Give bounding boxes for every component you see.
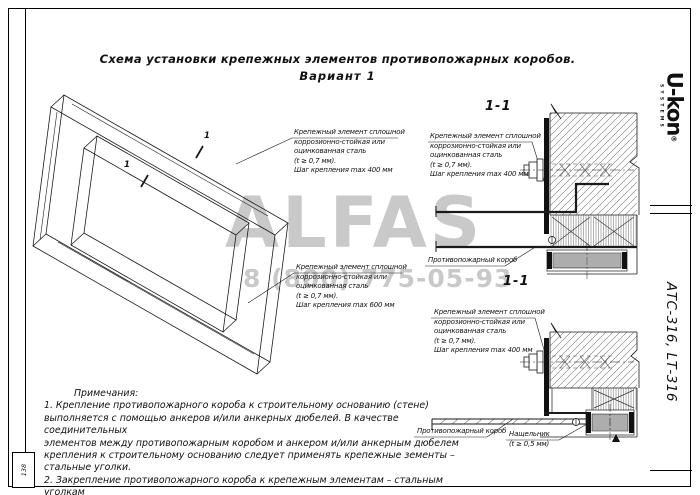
note-line: 1. Крепление противопожарного короба к с… <box>44 400 464 412</box>
annotation-line: оцинкованная сталь <box>434 327 545 337</box>
cut-mark-label: 1 <box>204 131 210 141</box>
section-1-title: 1-1 <box>485 99 512 114</box>
duct-label-1: Противопожарный короб <box>428 256 517 264</box>
section-2-title: 1-1 <box>503 274 530 289</box>
annotation-line: коррозионно-стойкая или <box>434 318 545 328</box>
annotation-line: Крепежный элемент сплошной <box>434 308 545 318</box>
annotation-line: Нащельник <box>509 430 550 438</box>
annotation-line: (t ≥ 0,7 мм). <box>434 337 545 347</box>
annotation-line: оцинкованная сталь <box>296 282 407 292</box>
annotation-fastener-sec2: Крепежный элемент сплошной коррозионно-с… <box>434 308 545 356</box>
annotation-line: Шаг крепления max 400 мм <box>434 346 545 356</box>
annotation-line: Крепежный элемент сплошной <box>430 132 541 142</box>
cut-mark-label: 1 <box>124 160 130 170</box>
drawing-sheet: ALFAS 8 (800) 775-05-93 <box>0 0 700 495</box>
note-line: стальные уголки. <box>44 462 464 474</box>
annotation-line: Шаг крепления max 400 мм <box>294 166 405 176</box>
annotation-line: коррозионно-стойкая или <box>294 138 405 148</box>
annotation-line: коррозионно-стойкая или <box>296 273 407 283</box>
note-line: крепления к строительному основанию след… <box>44 450 464 462</box>
annotation-line: (t ≥ 0,7 мм). <box>296 292 407 302</box>
annotation-line: Крепежный элемент сплошной <box>296 263 407 273</box>
section-1 <box>436 104 639 281</box>
annotation-line: Шаг крепления max 600 мм <box>296 301 407 311</box>
annotation-line: оцинкованная сталь <box>430 151 541 161</box>
annotation-line: оцинкованная сталь <box>294 147 405 157</box>
annotation-fastener-mid: Крепежный элемент сплошной коррозионно-с… <box>296 263 407 311</box>
drawing-title: Схема установки крепежных элементов прот… <box>25 52 650 66</box>
annotation-line: (t ≥ 0,7 мм). <box>294 157 405 167</box>
annotation-fastener-sec1: Крепежный элемент сплошной коррозионно-с… <box>430 132 541 180</box>
annotation-line: Шаг крепления max 400 мм <box>430 170 541 180</box>
annotation-line: (t ≥ 0,7 мм). <box>430 161 541 171</box>
notes-block: Примечания: 1. Крепление противопожарног… <box>44 388 464 495</box>
drawing-variant: Вариант 1 <box>25 69 650 83</box>
annotation-line: (t ≥ 0,5 мм) <box>509 440 550 448</box>
notes-heading: Примечания: <box>44 388 464 400</box>
flashing-label: Нащельник (t ≥ 0,5 мм) <box>509 430 550 448</box>
annotation-line: коррозионно-стойкая или <box>430 142 541 152</box>
note-line: 2. Закрепление противопожарного короба к… <box>44 475 464 495</box>
note-line: выполняется с помощью анкеров и/или анке… <box>44 413 464 438</box>
annotation-fastener-top: Крепежный элемент сплошной коррозионно-с… <box>294 128 405 176</box>
note-line: элементов между противопожарным коробом … <box>44 438 464 450</box>
isometric-frame <box>33 95 288 374</box>
annotation-line: Крепежный элемент сплошной <box>294 128 405 138</box>
